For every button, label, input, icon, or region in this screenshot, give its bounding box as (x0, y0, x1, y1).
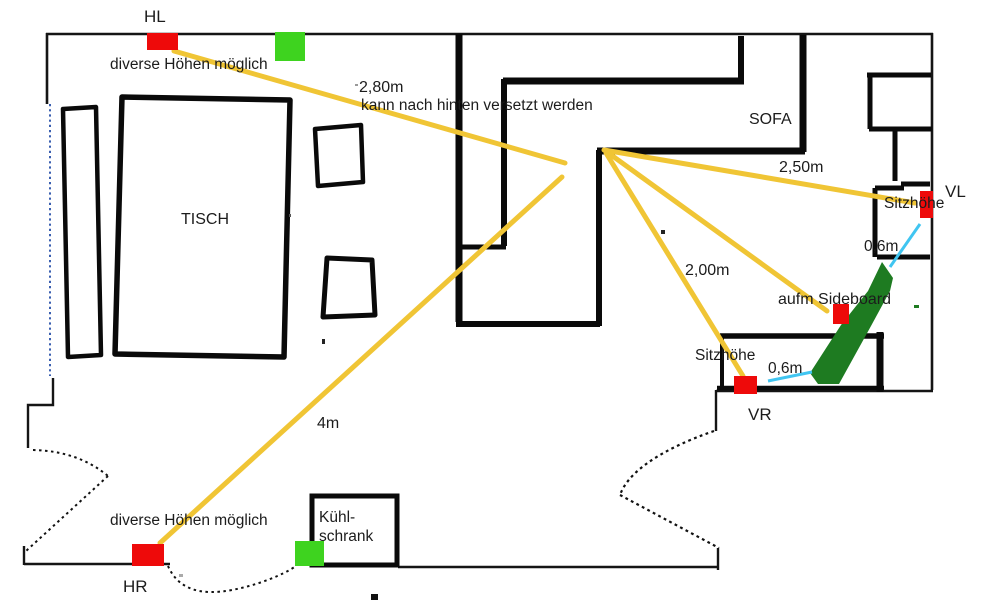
svg-text:2,80m: 2,80m (359, 79, 403, 96)
svg-text:0,6m: 0,6m (768, 360, 802, 377)
svg-text:2,50m: 2,50m (779, 159, 823, 176)
svg-text:4m: 4m (317, 415, 339, 432)
svg-text:aufm Sideboard: aufm Sideboard (778, 291, 891, 308)
svg-text:HR: HR (123, 577, 148, 596)
svg-text:0,6m: 0,6m (864, 238, 898, 255)
svg-text:Sitzhöhe: Sitzhöhe (695, 347, 755, 364)
svg-text:Sitzhöhe: Sitzhöhe (884, 195, 944, 212)
svg-text:TISCH: TISCH (181, 211, 229, 228)
svg-text:Kühl-: Kühl- (319, 509, 355, 526)
svg-text:diverse Höhen möglich: diverse Höhen möglich (110, 512, 268, 529)
svg-text:schrank: schrank (319, 528, 374, 545)
svg-text:2,00m: 2,00m (685, 262, 729, 279)
svg-text:HL: HL (144, 7, 166, 26)
svg-text:SOFA: SOFA (749, 111, 792, 128)
svg-text:kann nach hinten versetzt werd: kann nach hinten versetzt werden (361, 97, 593, 114)
svg-text:diverse Höhen möglich: diverse Höhen möglich (110, 56, 268, 73)
svg-text:VL: VL (945, 182, 966, 201)
svg-text:VR: VR (748, 405, 772, 424)
